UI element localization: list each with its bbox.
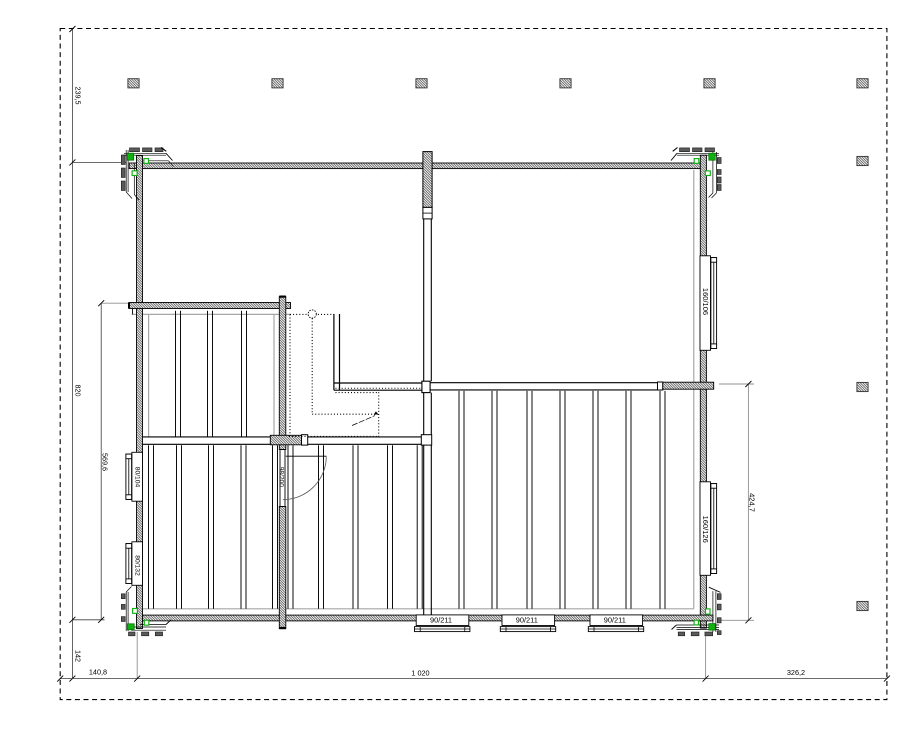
svg-text:90/211: 90/211 [604,615,626,624]
svg-text:80/104: 80/104 [134,467,141,488]
svg-text:140,8: 140,8 [89,668,107,677]
svg-text:142: 142 [74,650,83,662]
svg-text:239,5: 239,5 [74,87,83,105]
svg-text:98/200: 98/200 [277,467,284,488]
svg-text:424,7: 424,7 [747,493,756,512]
svg-text:90/211: 90/211 [516,615,538,624]
svg-text:569,6: 569,6 [101,453,110,471]
svg-text:90/211: 90/211 [430,615,452,624]
svg-text:326,2: 326,2 [787,668,805,677]
svg-text:820: 820 [74,385,83,397]
svg-text:160/106: 160/106 [701,288,710,315]
svg-text:160/126: 160/126 [701,516,710,543]
svg-text:80/132: 80/132 [134,555,141,576]
svg-text:1 020: 1 020 [411,669,429,678]
